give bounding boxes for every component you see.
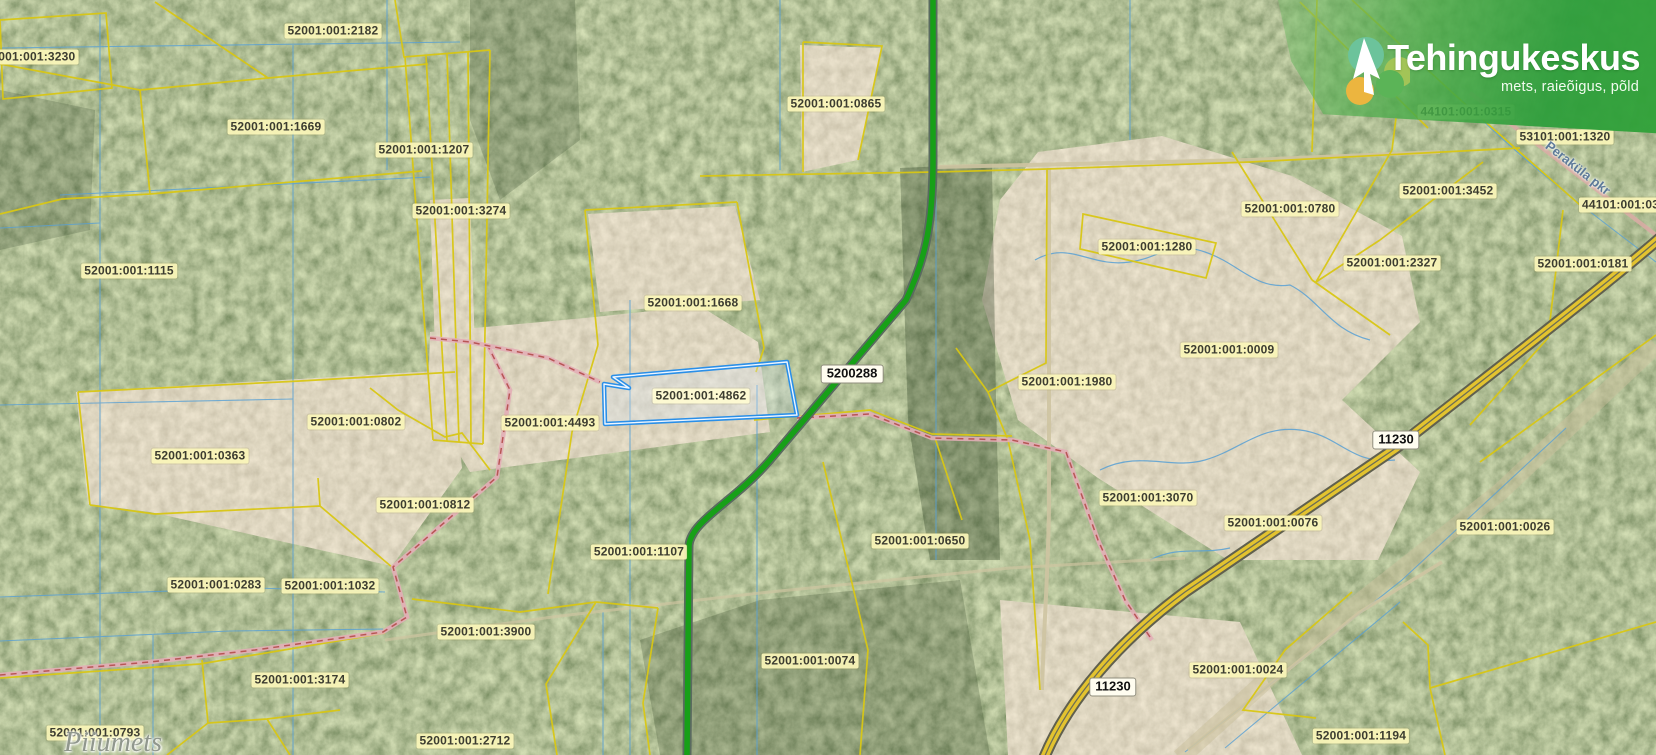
- parcel-label[interactable]: 52001:001:2327: [1344, 256, 1441, 271]
- parcel-label[interactable]: 52001:001:1669: [228, 120, 325, 135]
- parcel-label[interactable]: 52001:001:0780: [1242, 202, 1339, 217]
- parcel-label[interactable]: 52001:001:3230: [0, 50, 78, 65]
- parcel-label[interactable]: 52001:001:3070: [1100, 491, 1197, 506]
- parcel-label[interactable]: 52001:001:0865: [788, 97, 885, 112]
- road-number-label: 11230: [1089, 678, 1136, 697]
- parcel-label[interactable]: 52001:001:0363: [152, 449, 249, 464]
- parcel-label[interactable]: 52001:001:3174: [252, 673, 349, 688]
- parcel-label[interactable]: 52001:001:0074: [762, 654, 859, 669]
- parcel-label[interactable]: 52001:001:3274: [413, 204, 510, 219]
- parcel-label[interactable]: 52001:001:1115: [81, 264, 177, 279]
- road-number-label: 5200288: [821, 365, 884, 384]
- parcel-label[interactable]: 52001:001:2182: [285, 24, 382, 39]
- parcel-label[interactable]: 52001:001:0009: [1181, 343, 1278, 358]
- parcel-label[interactable]: 53101:001:1320: [1517, 130, 1614, 145]
- parcel-label[interactable]: 52001:001:0076: [1225, 516, 1322, 531]
- parcel-label[interactable]: 52001:001:1194: [1313, 729, 1409, 744]
- parcel-label[interactable]: 52001:001:0181: [1535, 257, 1632, 272]
- parcel-label[interactable]: 52001:001:3452: [1400, 184, 1497, 199]
- parcel-label[interactable]: 52001:001:4862: [653, 389, 750, 404]
- parcel-label[interactable]: 52001:001:3900: [438, 625, 535, 640]
- watercourse-label: Peraküla pkr: [1543, 138, 1614, 198]
- parcel-label[interactable]: 44101:001:0315: [1418, 105, 1515, 120]
- parcel-label[interactable]: 52001:001:1032: [282, 579, 379, 594]
- parcel-label[interactable]: 52001:001:0026: [1457, 520, 1554, 535]
- parcel-label[interactable]: 52001:001:1207: [376, 143, 473, 158]
- parcel-label[interactable]: 52001:001:1980: [1019, 375, 1116, 390]
- parcel-label[interactable]: 52001:001:0650: [872, 534, 969, 549]
- map-viewport[interactable]: 52001:001:323052001:001:218252001:001:16…: [0, 0, 1656, 755]
- place-name-label: Piiumets: [64, 727, 162, 755]
- parcel-label[interactable]: 52001:001:0283: [168, 578, 265, 593]
- parcel-label[interactable]: 52001:001:1280: [1099, 240, 1196, 255]
- parcel-label[interactable]: 52001:001:0812: [377, 498, 474, 513]
- parcel-label[interactable]: 44101:001:031: [1579, 198, 1656, 213]
- parcel-label[interactable]: 52001:001:1107: [591, 545, 687, 560]
- map-label-layer: 52001:001:323052001:001:218252001:001:16…: [0, 0, 1656, 755]
- parcel-label[interactable]: 52001:001:0802: [308, 415, 405, 430]
- parcel-label[interactable]: 52001:001:4493: [502, 416, 599, 431]
- parcel-label[interactable]: 52001:001:1668: [645, 296, 742, 311]
- parcel-label[interactable]: 52001:001:2712: [417, 734, 514, 749]
- parcel-label[interactable]: 52001:001:0024: [1190, 663, 1287, 678]
- road-number-label: 11230: [1372, 431, 1419, 450]
